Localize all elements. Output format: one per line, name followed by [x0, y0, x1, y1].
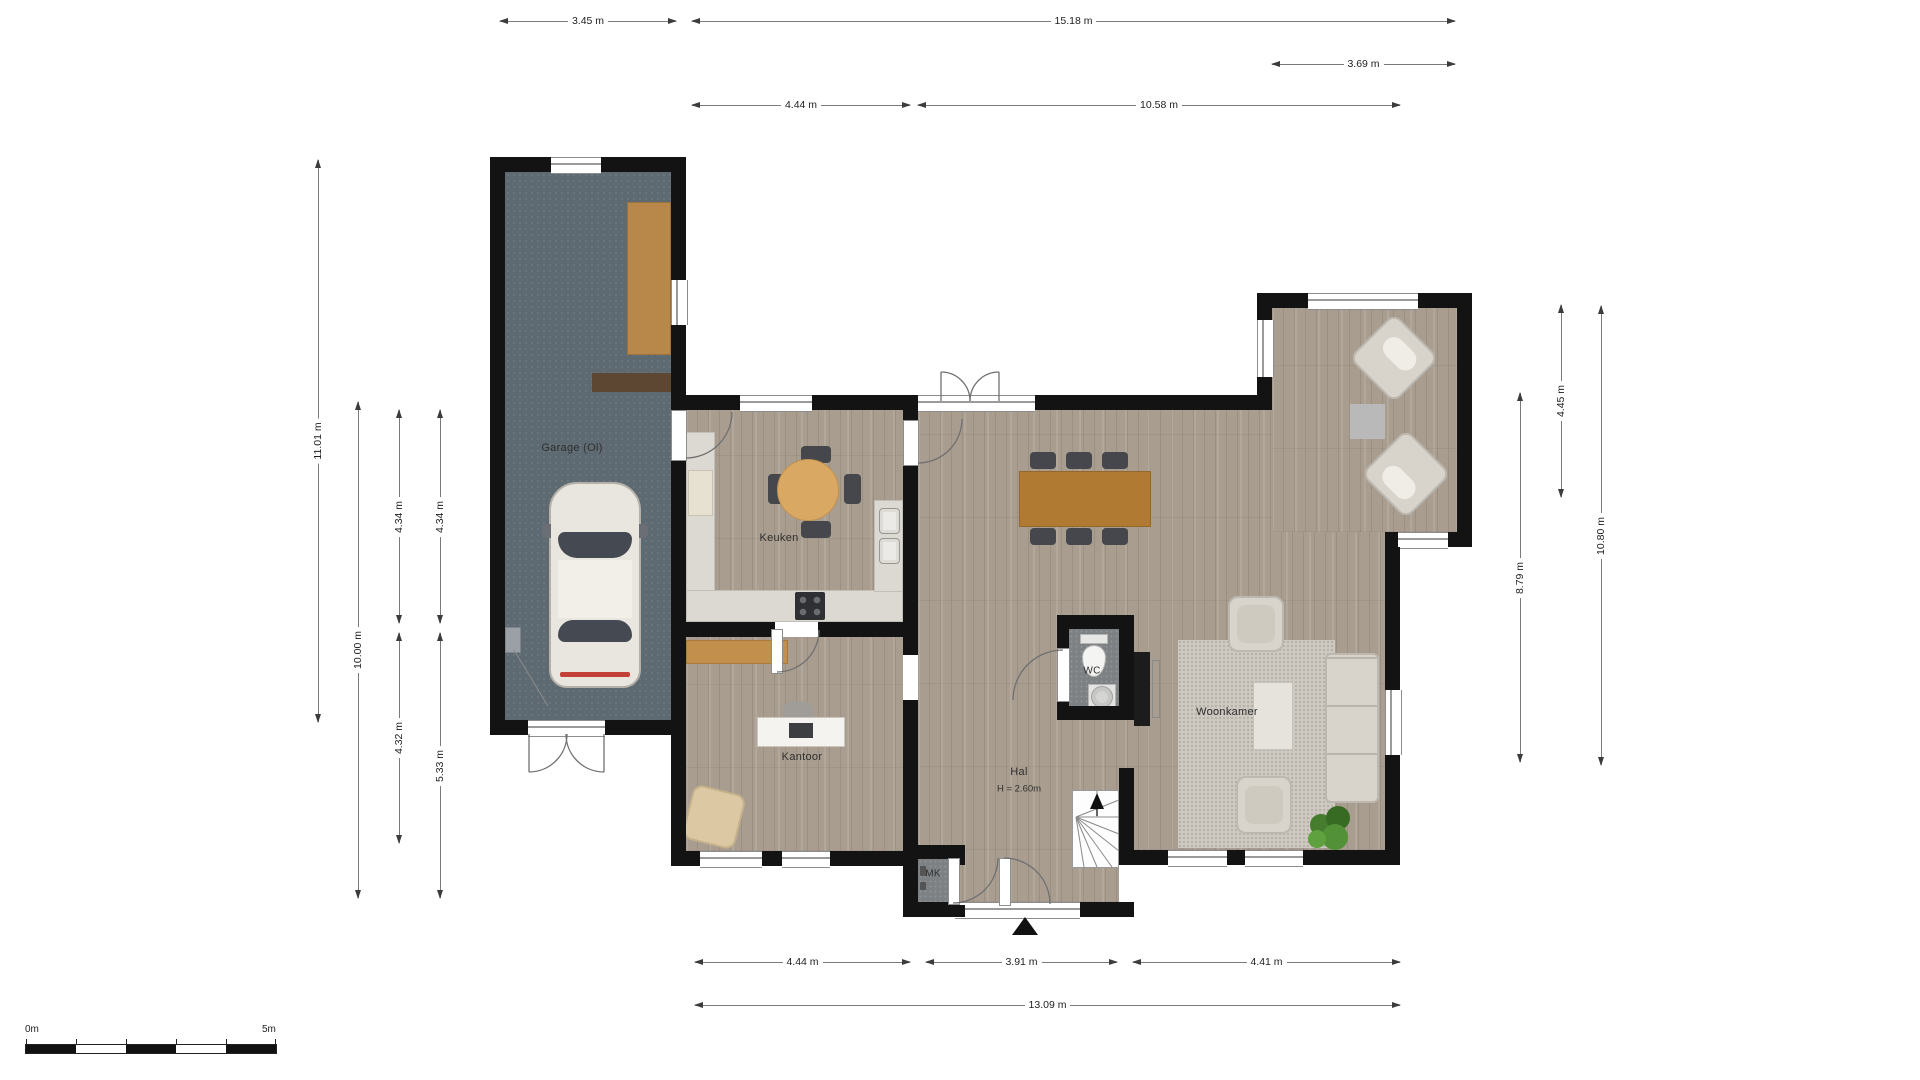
door-arc [1013, 650, 1063, 700]
room-label-keuken: Keuken [759, 532, 798, 544]
dimension-right-10-80: 10.80 m [1595, 306, 1607, 765]
garage-double-door [529, 734, 604, 772]
dimension-top-15-18: 15.18 m [692, 15, 1455, 27]
dimension-left-4-34-b: 4.34 m [434, 410, 446, 623]
plan-linework [0, 0, 1920, 1080]
floor-plan: Garage (Ol) Keuken Kantoor Hal H = 2.60m… [0, 0, 1920, 1080]
patio-double-door [941, 372, 999, 401]
dimension-bottom-13-09: 13.09 m [695, 999, 1400, 1011]
room-label-woonkamer: Woonkamer [1196, 706, 1258, 718]
dimension-right-4-45: 4.45 m [1555, 305, 1567, 497]
room-label-hal: Hal [1010, 766, 1027, 778]
dimension-top-4-44: 4.44 m [692, 99, 910, 111]
dimension-left-11-01: 11.01 m [312, 160, 324, 722]
dimension-left-4-32: 4.32 m [393, 633, 405, 843]
door-arc [686, 412, 732, 458]
garage-detail-line [514, 650, 548, 706]
dimension-right-8-79: 8.79 m [1514, 393, 1526, 762]
door-arc [918, 419, 962, 463]
room-label-hal-height: H = 2.60m [997, 784, 1041, 795]
dimension-bottom-4-41: 4.41 m [1133, 956, 1400, 968]
room-label-garage: Garage (Ol) [541, 442, 602, 454]
dimension-left-4-34-a: 4.34 m [393, 410, 405, 623]
dimension-left-10-00: 10.00 m [352, 402, 364, 898]
door-arc [953, 858, 998, 903]
dimension-left-5-33: 5.33 m [434, 633, 446, 898]
dimension-top-10-58: 10.58 m [918, 99, 1400, 111]
dimension-top-3-45: 3.45 m [500, 15, 676, 27]
entrance-marker-icon [1012, 917, 1038, 935]
room-label-wc: WC [1083, 666, 1100, 677]
dimension-bottom-3-91: 3.91 m [926, 956, 1117, 968]
scale-bar [25, 1044, 277, 1054]
stairs-up-arrow-icon [1090, 793, 1104, 816]
room-label-kantoor: Kantoor [782, 751, 823, 763]
door-arc [777, 630, 819, 672]
scale-bar-start-label: 0m [25, 1024, 39, 1035]
room-label-mk: MK [925, 869, 941, 880]
door-arc [1004, 858, 1050, 904]
dimension-bottom-4-44: 4.44 m [695, 956, 910, 968]
dimension-top-3-69: 3.69 m [1272, 58, 1455, 70]
scale-bar-end-label: 5m [262, 1024, 276, 1035]
